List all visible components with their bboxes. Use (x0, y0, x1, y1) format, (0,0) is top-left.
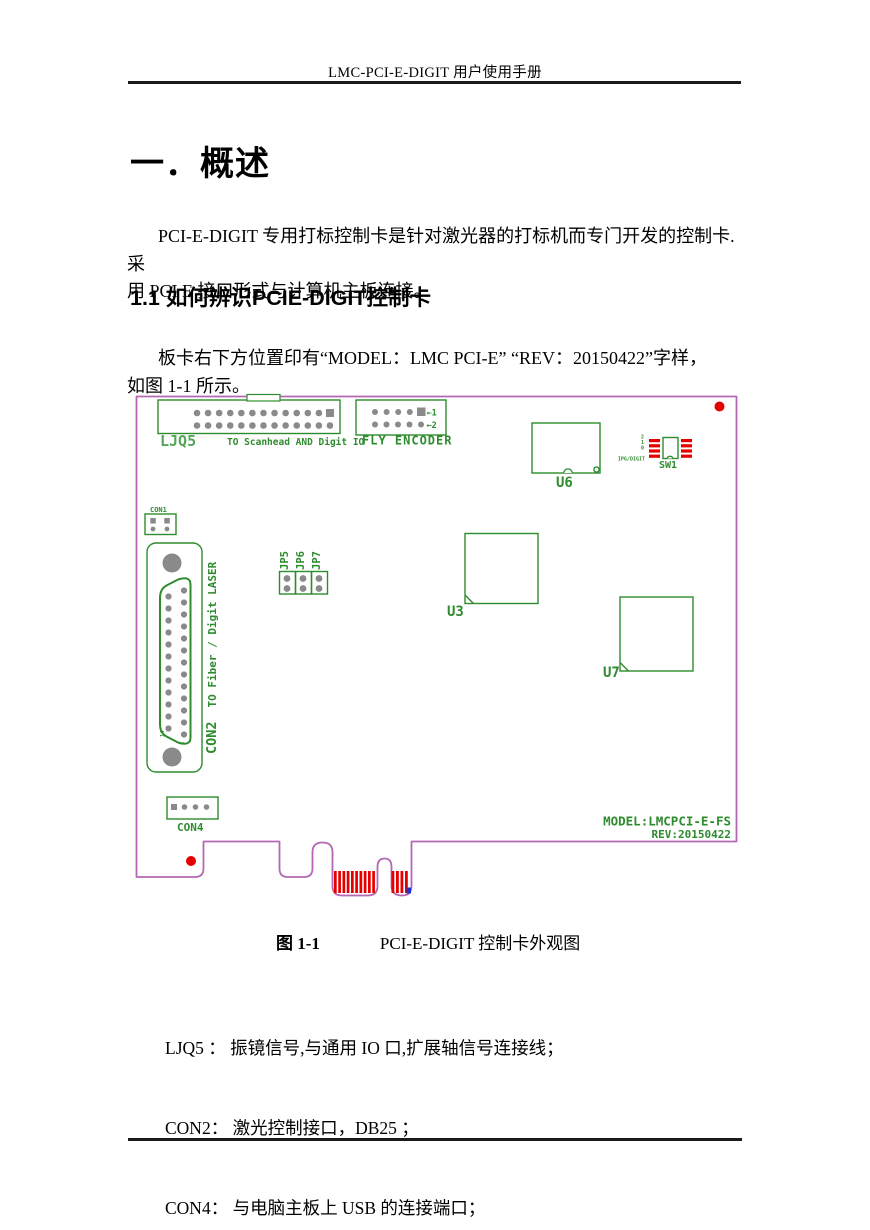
fly-label: FLY ENCODER (362, 434, 452, 448)
con1-label: CON1 (150, 506, 167, 514)
board-rev-text: REV:20150422 (652, 828, 731, 841)
legend-item: LJQ5 ： 振镜信号,与通用 IO 口,扩展轴信号连接线； (165, 1035, 564, 1062)
jp5-label: JP5 (279, 551, 291, 570)
u7-label: U7 (603, 665, 620, 681)
mounting-hole-top (163, 554, 182, 573)
fly-row1-marker: ←1 (427, 409, 437, 419)
red-dot-bottom-left (186, 856, 196, 866)
section-heading: 1.1 如何辨识PCIE-DIGIT控制卡 (130, 281, 431, 312)
sw1-label: SW1 (659, 460, 677, 471)
con2-pin14-label: 14 (160, 730, 166, 737)
paragraph-line: PCI-E-DIGIT 专用打标控制卡是针对激光器的打标机而专门开发的控制卡.采 (127, 223, 749, 278)
pcb-figure: LJQ5 TO Scanhead AND Digit IO ←1 ←2 FLY … (120, 385, 765, 920)
mounting-hole-bottom (163, 748, 182, 767)
jp6-label: JP6 (295, 551, 307, 570)
connector-legend: LJQ5 ： 振镜信号,与通用 IO 口,扩展轴信号连接线； CON2： 激光控… (165, 981, 564, 1230)
ljq5-desc: TO Scanhead AND Digit IO (227, 437, 365, 448)
ljq5-label: LJQ5 (160, 432, 196, 450)
chapter-heading: 一．概述 (130, 136, 270, 185)
red-dot-top-right (715, 402, 725, 412)
sw1-side-label: IPG/DIGIT (618, 457, 645, 463)
con2-desc: TO Fiber / Digit LASER (206, 561, 219, 707)
u6-label: U6 (556, 475, 573, 491)
header-rule (128, 81, 741, 84)
figure-caption-label: 图 1-1 (276, 929, 320, 954)
manual-page: LMC-PCI-E-DIGIT 用户使用手册 一．概述 PCI-E-DIGIT … (0, 0, 870, 1230)
u3-label: U3 (447, 604, 464, 620)
jp7-label: JP7 (311, 551, 323, 570)
page-header-title: LMC-PCI-E-DIGIT 用户使用手册 (128, 61, 742, 82)
finger-blue-mark (407, 888, 412, 894)
con2-vertical-label: CON2 TO Fiber / Digit LASER (203, 561, 220, 754)
fly-row2-marker: ←2 (427, 421, 437, 431)
paragraph-line: 板卡右下方位置印有“MODEL：LMC PCI-E” “REV：20150422… (127, 345, 749, 373)
legend-item: CON4： 与电脑主板上 USB 的连接端口； (165, 1195, 564, 1222)
sw1-digit-0: 0 (641, 446, 644, 452)
board-model-text: MODEL:LMCPCI-E-FS (603, 814, 731, 829)
footer-rule (128, 1138, 742, 1141)
figure-caption-text: PCI-E-DIGIT 控制卡外观图 (380, 929, 580, 954)
con4-label: CON4 (177, 821, 204, 834)
con2-label: CON2 (204, 721, 220, 754)
figure-caption: 图 1-1 PCI-E-DIGIT 控制卡外观图 (276, 929, 580, 954)
